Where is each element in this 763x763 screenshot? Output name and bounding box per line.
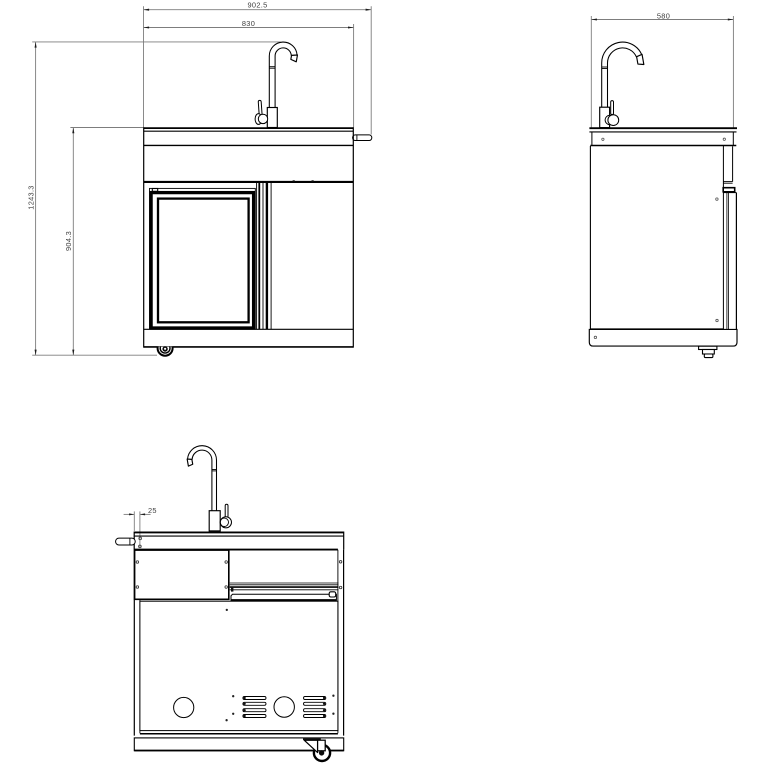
svg-text:830: 830 — [242, 19, 255, 28]
svg-text:25: 25 — [148, 506, 157, 515]
svg-text:580: 580 — [657, 12, 670, 21]
svg-text:902.5: 902.5 — [248, 1, 268, 10]
svg-text:904.3: 904.3 — [64, 231, 73, 251]
svg-text:1243.3: 1243.3 — [26, 185, 35, 209]
